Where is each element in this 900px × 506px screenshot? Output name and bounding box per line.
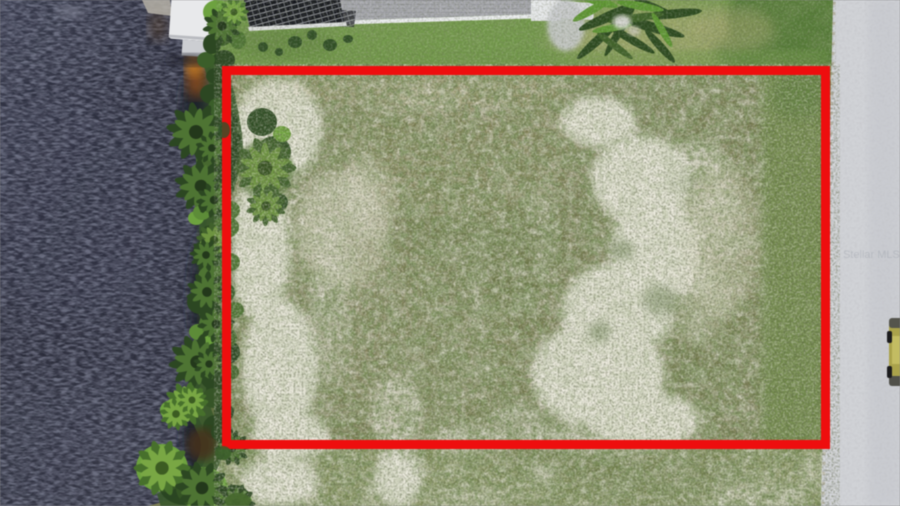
svg-text:Stellar MLS: Stellar MLS [843,249,900,261]
